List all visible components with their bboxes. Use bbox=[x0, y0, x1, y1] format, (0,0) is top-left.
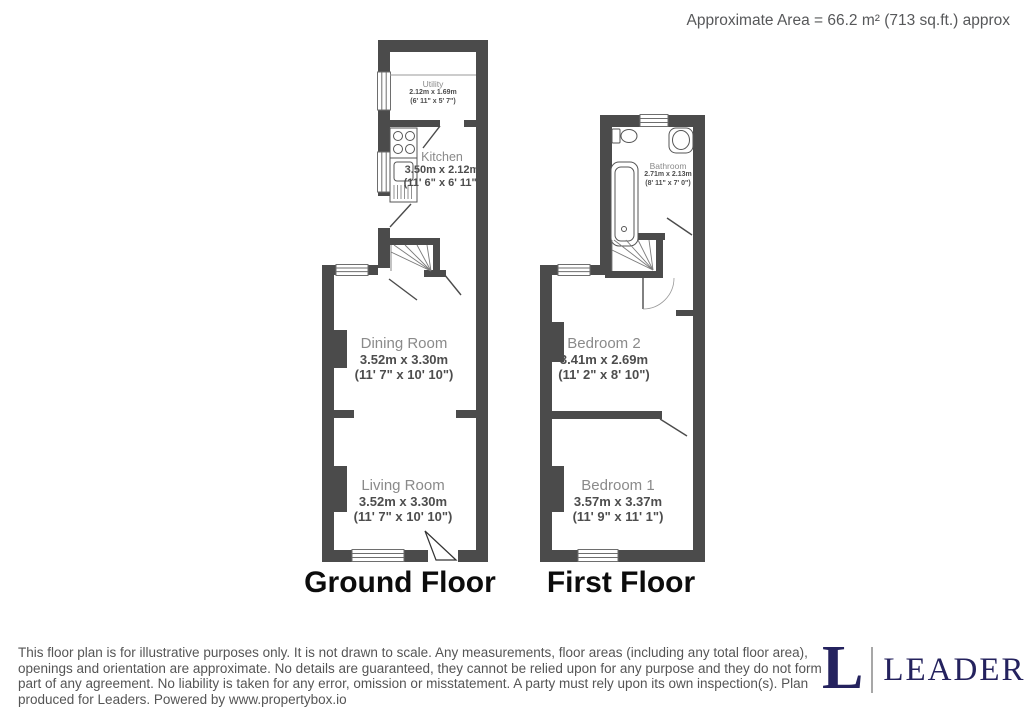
logo-divider bbox=[871, 647, 873, 693]
first-floor-title: First Floor bbox=[547, 566, 695, 600]
room-dimensions-imperial: (11' 2" x 8' 10") bbox=[558, 367, 650, 382]
room-label-living-room: Living Room 3.52m x 3.30m (11' 7" x 10' … bbox=[354, 477, 453, 524]
room-dimensions-imperial: (11' 7" x 10' 10") bbox=[354, 509, 453, 524]
room-name: Dining Room bbox=[355, 335, 454, 352]
room-dimensions-metric: 3.41m x 2.69m bbox=[558, 352, 650, 367]
room-name: Kitchen bbox=[404, 150, 481, 164]
room-label-kitchen: Kitchen 3.50m x 2.12m (11' 6" x 6' 11") bbox=[404, 150, 481, 190]
room-dimensions-imperial: (11' 6" x 6' 11") bbox=[404, 177, 481, 190]
room-dimensions-imperial: (6' 11" x 5' 7") bbox=[409, 98, 456, 107]
basin-icon bbox=[669, 128, 693, 153]
room-dimensions-metric: 2.12m x 1.69m bbox=[409, 89, 456, 98]
toilet-icon bbox=[612, 129, 637, 143]
approximate-area-text: Approximate Area = 66.2 m² (713 sq.ft.) … bbox=[686, 12, 1010, 30]
floorplan-page: Approximate Area = 66.2 m² (713 sq.ft.) … bbox=[0, 0, 1024, 717]
leaders-logo-wordmark: LEADERS bbox=[883, 652, 1024, 689]
room-label-bedroom-1: Bedroom 1 3.57m x 3.37m (11' 9" x 11' 1"… bbox=[573, 477, 664, 524]
room-label-bathroom: Bathroom 2.71m x 2.13m (8' 11" x 7' 0") bbox=[644, 161, 691, 188]
room-dimensions-imperial: (11' 7" x 10' 10") bbox=[355, 367, 454, 382]
room-dimensions-metric: 3.52m x 3.30m bbox=[354, 494, 453, 509]
room-name: Living Room bbox=[354, 477, 453, 494]
room-name: Bathroom bbox=[644, 161, 691, 171]
room-name: Bedroom 1 bbox=[573, 477, 664, 494]
bathtub-icon bbox=[611, 162, 638, 246]
disclaimer-text: This floor plan is for illustrative purp… bbox=[18, 645, 824, 707]
room-dimensions-imperial: (11' 9" x 11' 1") bbox=[573, 509, 664, 524]
room-label-bedroom-2: Bedroom 2 3.41m x 2.69m (11' 2" x 8' 10"… bbox=[558, 335, 650, 382]
room-dimensions-metric: 3.52m x 3.30m bbox=[355, 352, 454, 367]
room-label-utility: Utility 2.12m x 1.69m (6' 11" x 5' 7") bbox=[409, 79, 456, 106]
room-dimensions-metric: 3.50m x 2.12m bbox=[404, 164, 481, 177]
room-dimensions-metric: 3.57m x 3.37m bbox=[573, 494, 664, 509]
room-dimensions-imperial: (8' 11" x 7' 0") bbox=[644, 180, 691, 189]
staircase-icon bbox=[391, 245, 431, 271]
chimney-breast bbox=[334, 330, 347, 512]
room-name: Bedroom 2 bbox=[558, 335, 650, 352]
leaders-logo-letter: L bbox=[822, 639, 863, 697]
room-name: Utility bbox=[409, 79, 456, 89]
leaders-logo: L LEADERS bbox=[822, 636, 1024, 700]
ground-floor-title: Ground Floor bbox=[304, 566, 496, 600]
room-dimensions-metric: 2.71m x 2.13m bbox=[644, 171, 691, 180]
room-label-dining-room: Dining Room 3.52m x 3.30m (11' 7" x 10' … bbox=[355, 335, 454, 382]
